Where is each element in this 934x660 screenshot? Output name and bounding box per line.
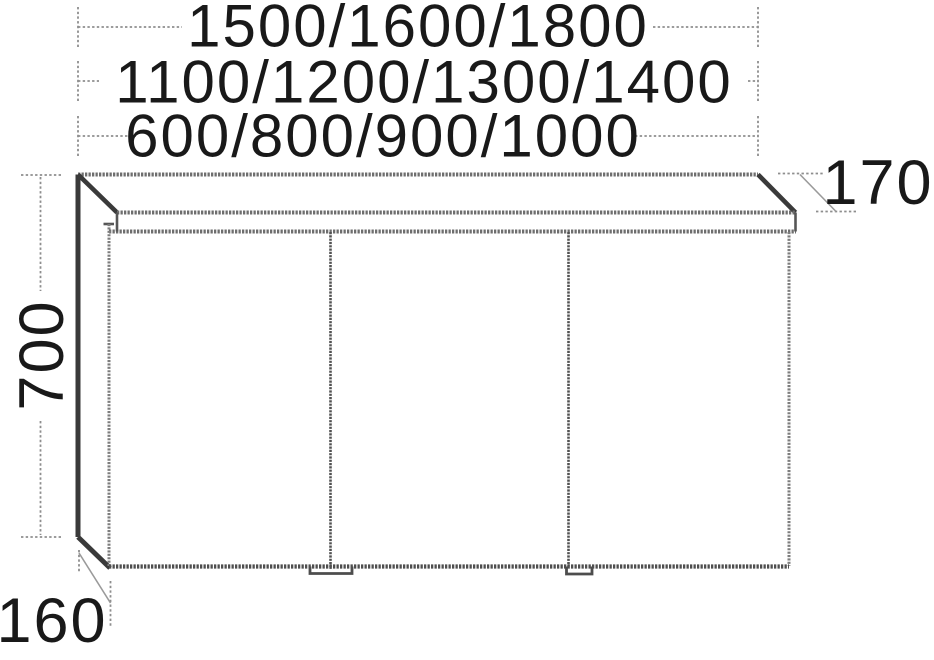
carcass-depth-dimension: 160 <box>0 550 111 656</box>
drawing-canvas: 1500/1600/1800 1100/1200/1300/1400 600/8… <box>0 0 934 660</box>
cabinet-top-panel <box>78 175 796 232</box>
canopy-right-corner-diagonal <box>758 175 796 213</box>
width-row-3-label: 600/800/900/1000 <box>125 103 641 170</box>
technical-drawing-page: 1500/1600/1800 1100/1200/1300/1400 600/8… <box>0 0 934 660</box>
carcass-depth-label: 160 <box>0 586 108 656</box>
cabinet-body <box>78 175 789 575</box>
side-panel-bottom-diagonal <box>78 537 110 568</box>
height-dimension: 700 <box>7 175 77 537</box>
canopy-depth-dimension: 170 <box>778 148 934 218</box>
canopy-depth-label: 170 <box>822 148 933 218</box>
canopy-left-corner-diagonal <box>78 175 117 213</box>
height-label: 700 <box>7 299 77 410</box>
